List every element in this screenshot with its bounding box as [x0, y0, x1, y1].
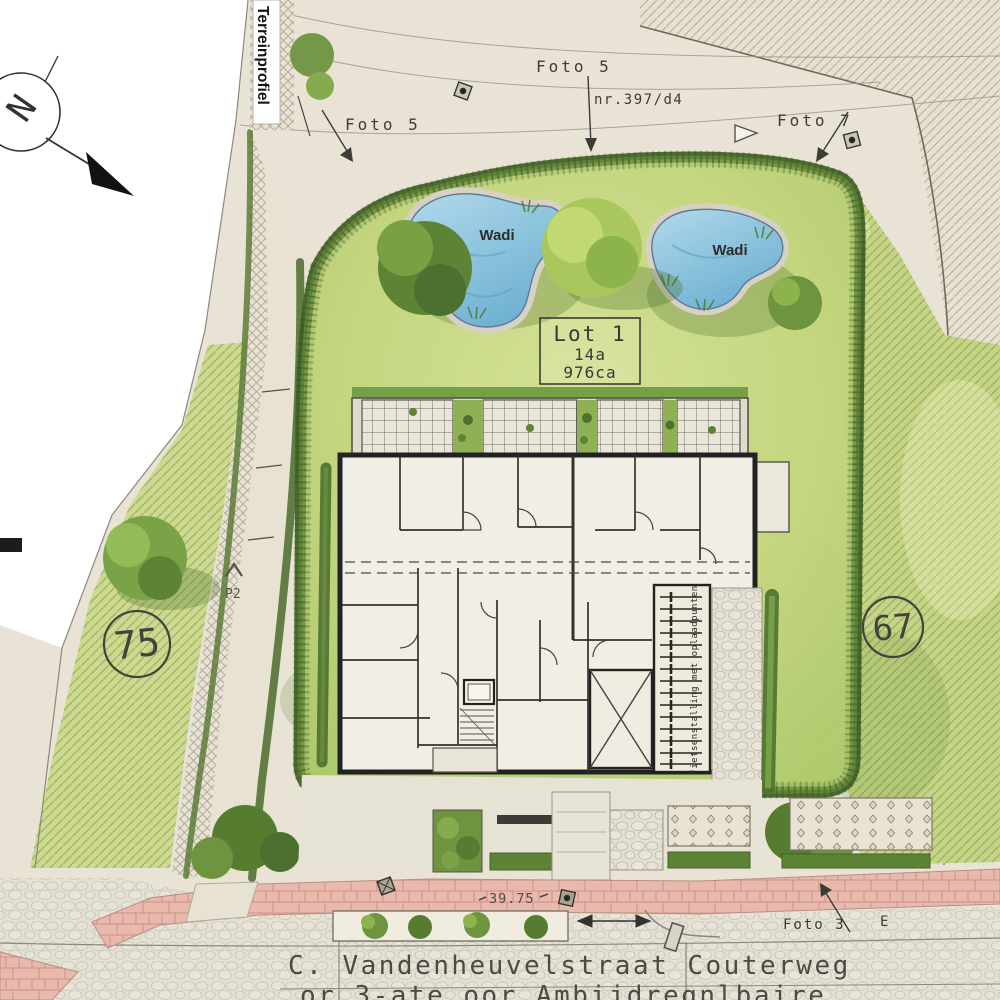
- p2-label: P2: [225, 587, 241, 602]
- roof-terraces: [352, 387, 748, 458]
- foto3-label: Foto 3: [783, 917, 846, 933]
- side-patio: [755, 462, 789, 532]
- foto5-left-label: Foto 5: [345, 115, 421, 134]
- street-name-line2: or 3-ate oor Ambijdregnlbaire: [300, 981, 826, 1000]
- terrain-profile-label: Terreinprofiel: [254, 6, 271, 105]
- wadi-right-label: Wadi: [712, 242, 747, 259]
- marker-e-label: E: [880, 914, 888, 930]
- foto5-top-label: Foto 5: [536, 57, 612, 76]
- bike-storage: Fietsenstalling met oplaadpunten: [654, 585, 710, 775]
- site-plan-drawing: P2 Terreinprofiel Wadi: [0, 0, 1000, 1000]
- terrain-profile-band: Terreinprofiel: [250, 0, 294, 130]
- wadi-left-label: Wadi: [479, 227, 514, 244]
- foto7-label: Foto 7: [777, 111, 853, 130]
- lot-label-box: Lot 1 14a 976ca: [540, 318, 640, 384]
- dimension-text: 39.75: [489, 891, 535, 907]
- lot-area-a: 14a: [574, 345, 606, 364]
- lot-area-ca: 976ca: [563, 363, 616, 382]
- lot-number: Lot 1: [553, 322, 626, 346]
- site-plan-svg: P2 Terreinprofiel Wadi: [0, 0, 1000, 1000]
- parcel-number-label: nr.397/d4: [594, 92, 683, 108]
- edge-marker: [0, 538, 22, 552]
- parcel-right-number: 67: [871, 606, 915, 649]
- bike-parking-label: Fietsenstalling met oplaadpunten: [690, 585, 700, 774]
- street-planter: [333, 911, 568, 941]
- shaft-cross: [590, 670, 652, 768]
- parcel-left-number: 75: [112, 620, 162, 669]
- street-name: C. Vandenheuvelstraat Couterweg: [288, 951, 851, 981]
